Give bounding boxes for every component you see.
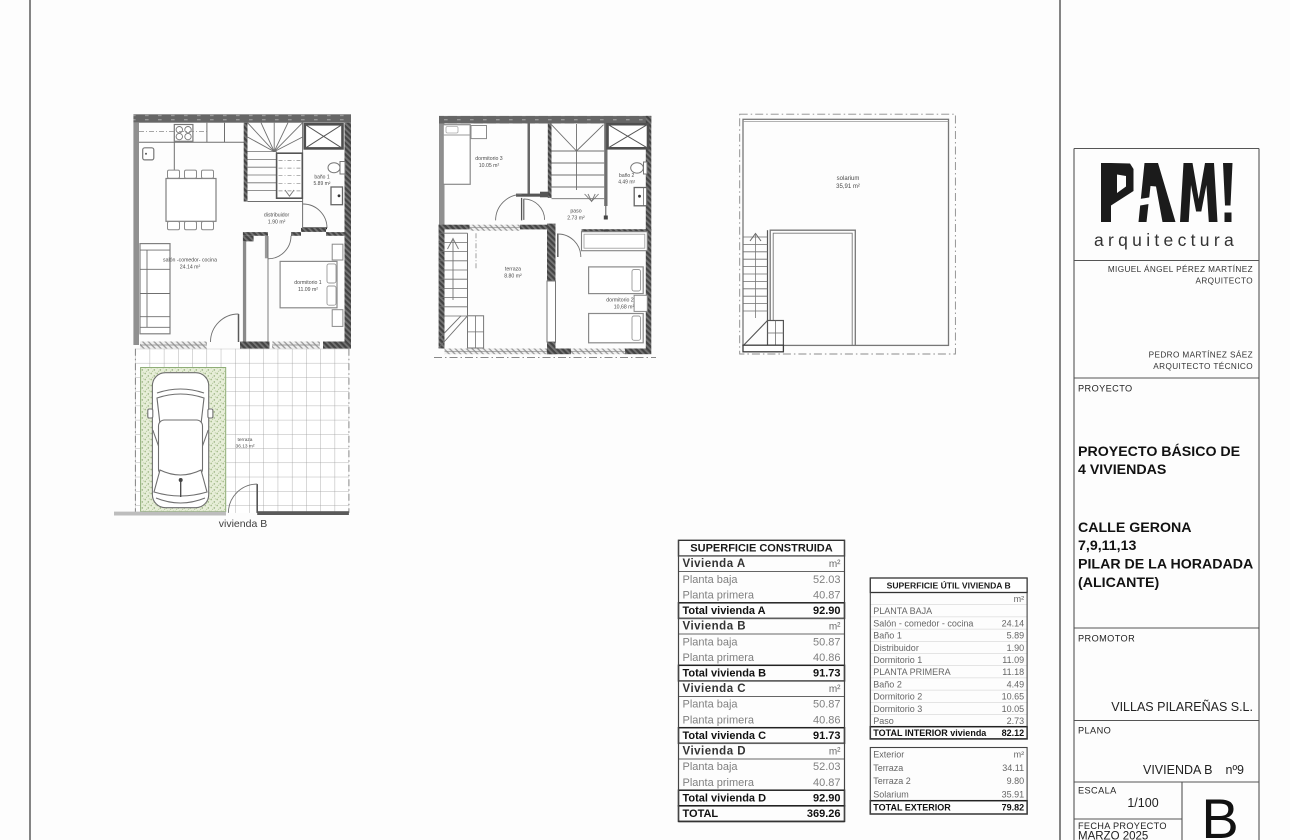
svg-text:40.87: 40.87 [813,589,841,601]
svg-text:82.12: 82.12 [1002,728,1025,738]
svg-text:Total vivienda D: Total vivienda D [683,793,767,805]
svg-text:5.89: 5.89 [1007,631,1025,641]
svg-text:79.82: 79.82 [1002,803,1025,813]
svg-text:Planta baja: Planta baja [683,574,739,586]
svg-text:arquitectura: arquitectura [1094,230,1238,250]
svg-text:Vivienda C: Vivienda C [683,683,747,695]
svg-text:SUPERFICIE CONSTRUIDA: SUPERFICIE CONSTRUIDA [690,543,832,555]
svg-text:dormitorio 2: dormitorio 2 [606,298,634,304]
svg-text:4.49 m²: 4.49 m² [618,180,635,186]
svg-text:2.73 m²: 2.73 m² [567,216,585,222]
svg-text:PLANTA PRIMERA: PLANTA PRIMERA [873,667,950,677]
svg-text:baño 2: baño 2 [619,173,635,179]
svg-text:2.73: 2.73 [1007,716,1025,726]
svg-text:11.09: 11.09 [1002,655,1024,665]
svg-text:PLANO: PLANO [1078,726,1111,736]
svg-text:VIVIENDA B: VIVIENDA B [1143,763,1212,777]
svg-text:Dormitorio 1: Dormitorio 1 [873,655,922,665]
svg-text:40.86: 40.86 [813,714,841,726]
svg-text:VILLAS PILAREÑAS S.L.: VILLAS PILAREÑAS S.L. [1111,700,1253,714]
svg-text:40.86: 40.86 [813,652,841,664]
svg-text:10.05: 10.05 [1002,704,1025,714]
svg-text:Paso: Paso [873,716,894,726]
svg-text:m²: m² [829,747,841,758]
svg-text:Baño 2: Baño 2 [873,679,902,689]
svg-text:TOTAL INTERIOR vivienda: TOTAL INTERIOR vivienda [873,728,987,738]
svg-text:distribuidor: distribuidor [264,213,290,219]
svg-text:34.11: 34.11 [1002,763,1024,773]
svg-text:369.26: 369.26 [807,808,841,820]
svg-text:Planta primera: Planta primera [683,777,755,789]
svg-text:92.90: 92.90 [813,605,841,617]
svg-text:salón -comedor- cocina: salón -comedor- cocina [163,258,217,264]
svg-text:5.89 m²: 5.89 m² [314,181,331,187]
svg-text:dormitorio 1: dormitorio 1 [294,280,322,286]
svg-text:PEDRO MARTÍNEZ SÁEZ: PEDRO MARTÍNEZ SÁEZ [1149,350,1253,360]
svg-text:52.03: 52.03 [813,574,841,586]
svg-text:PROYECTO: PROYECTO [1078,384,1133,394]
svg-text:m²: m² [829,684,841,695]
svg-text:24.14: 24.14 [1002,618,1025,628]
svg-text:Dormitorio 2: Dormitorio 2 [873,692,922,702]
svg-text:(ALICANTE): (ALICANTE) [1078,575,1159,591]
svg-text:92.90: 92.90 [813,793,841,805]
svg-text:m²: m² [1014,594,1025,604]
svg-text:ARQUITECTO: ARQUITECTO [1195,277,1253,286]
svg-text:Planta primera: Planta primera [683,589,755,601]
svg-text:MIGUEL ÁNGEL PÉREZ MARTÍNEZ: MIGUEL ÁNGEL PÉREZ MARTÍNEZ [1108,264,1253,274]
svg-text:7,9,11,13: 7,9,11,13 [1078,538,1136,554]
svg-text:nº9: nº9 [1226,763,1245,777]
svg-text:ARQUITECTO TÉCNICO: ARQUITECTO TÉCNICO [1153,361,1253,371]
svg-text:Planta baja: Planta baja [683,699,739,711]
svg-text:m²: m² [829,622,841,633]
svg-text:Solarium: Solarium [873,789,909,799]
svg-text:Vivienda A: Vivienda A [683,558,746,570]
svg-text:PILAR DE LA HORADADA: PILAR DE LA HORADADA [1078,557,1253,573]
svg-text:Planta primera: Planta primera [683,714,755,726]
svg-text:Exterior: Exterior [873,750,904,760]
svg-text:11.18: 11.18 [1002,667,1024,677]
svg-text:52.03: 52.03 [813,761,841,773]
svg-text:36.13 m²: 36.13 m² [236,444,255,450]
svg-text:8.80 m²: 8.80 m² [504,274,522,280]
svg-text:91.73: 91.73 [813,668,841,680]
svg-text:TOTAL EXTERIOR: TOTAL EXTERIOR [873,803,951,813]
svg-text:4.49: 4.49 [1007,679,1025,689]
svg-text:FECHA PROYECTO: FECHA PROYECTO [1078,821,1167,831]
svg-text:Terraza: Terraza [873,763,903,773]
svg-text:m²: m² [829,559,841,570]
svg-text:4 VIVIENDAS: 4 VIVIENDAS [1078,462,1166,478]
svg-text:Total vivienda C: Total vivienda C [683,730,767,742]
svg-text:1.90: 1.90 [1007,643,1025,653]
svg-text:91.73: 91.73 [813,730,841,742]
svg-text:Distribuidor: Distribuidor [873,643,919,653]
svg-text:9.80: 9.80 [1007,776,1025,786]
svg-text:Salón - comedor - cocina: Salón - comedor - cocina [873,618,973,628]
svg-text:dormitorio 3: dormitorio 3 [475,156,503,162]
svg-text:paso: paso [570,209,581,215]
svg-text:vivienda B: vivienda B [219,518,267,530]
svg-text:Baño 1: Baño 1 [873,631,902,641]
svg-text:24.14 m²: 24.14 m² [180,265,201,271]
svg-text:TOTAL: TOTAL [683,808,719,820]
svg-text:10.65: 10.65 [1002,692,1025,702]
svg-text:11.09 m²: 11.09 m² [298,287,318,293]
svg-text:baño 1: baño 1 [314,175,330,181]
svg-text:50.87: 50.87 [813,699,841,711]
svg-text:CALLE GERONA: CALLE GERONA [1078,520,1192,536]
svg-text:PROMOTOR: PROMOTOR [1078,634,1135,644]
svg-text:solarium: solarium [837,176,860,182]
svg-text:40.87: 40.87 [813,777,841,789]
svg-text:35.91: 35.91 [1002,789,1025,799]
svg-text:Vivienda B: Vivienda B [683,621,747,633]
svg-text:Total vivienda A: Total vivienda A [683,605,766,617]
svg-text:Vivienda D: Vivienda D [683,746,747,758]
svg-text:35,91 m²: 35,91 m² [836,184,860,190]
svg-text:1/100: 1/100 [1127,796,1158,810]
svg-text:m²: m² [1014,750,1025,760]
svg-text:PLANTA BAJA: PLANTA BAJA [873,606,932,616]
svg-text:Planta baja: Planta baja [683,636,739,648]
svg-text:SUPERFICIE ÚTIL VIVIENDA B: SUPERFICIE ÚTIL VIVIENDA B [887,580,1011,591]
svg-text:Planta primera: Planta primera [683,652,755,664]
svg-text:B: B [1201,787,1238,840]
svg-text:terraza: terraza [238,437,253,443]
svg-text:10,68 m²: 10,68 m² [614,305,635,311]
svg-text:Total vivienda B: Total vivienda B [683,668,767,680]
svg-text:Dormitorio 3: Dormitorio 3 [873,704,922,714]
svg-text:1.90 m²: 1.90 m² [268,220,286,226]
svg-text:MARZO 2025: MARZO 2025 [1078,831,1148,840]
svg-text:50.87: 50.87 [813,636,841,648]
svg-text:Terraza 2: Terraza 2 [873,776,911,786]
svg-text:PROYECTO BÁSICO DE: PROYECTO BÁSICO DE [1078,443,1240,460]
svg-text:Planta baja: Planta baja [683,761,739,773]
svg-text:terraza: terraza [505,267,521,273]
svg-text:10.05 m²: 10.05 m² [479,163,500,169]
svg-text:ESCALA: ESCALA [1078,786,1117,796]
